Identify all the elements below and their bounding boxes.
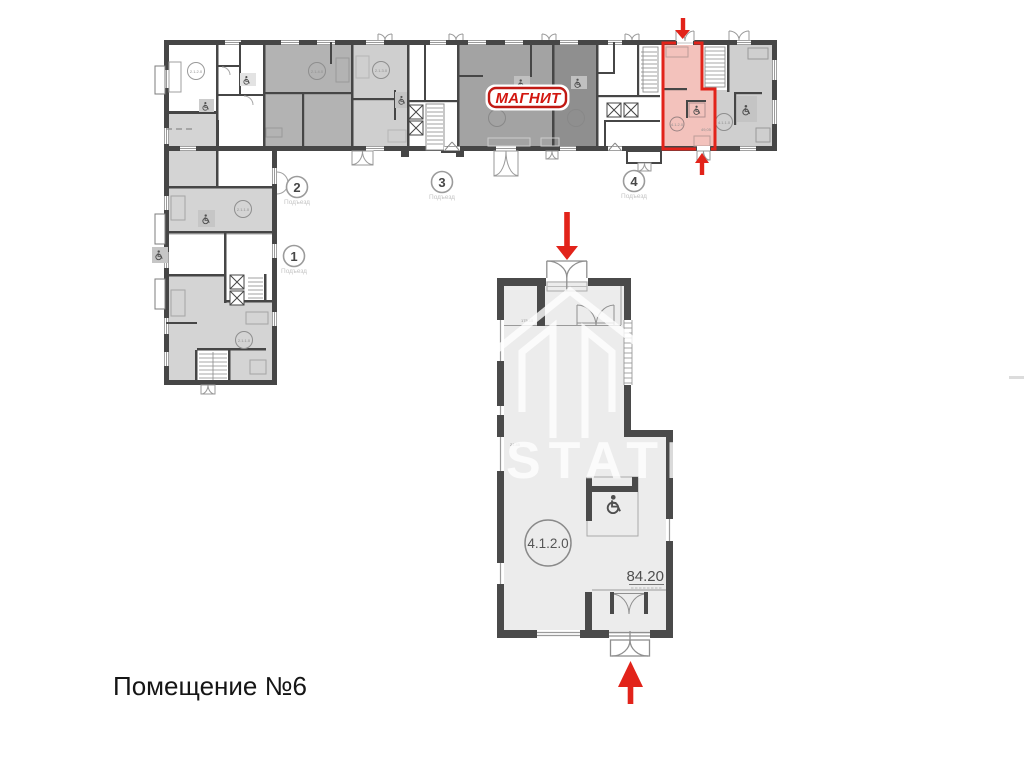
svg-text:49,05: 49,05: [701, 127, 712, 132]
svg-text:2.1.1.0: 2.1.1.0: [238, 338, 251, 343]
svg-text:Подъезд: Подъезд: [621, 193, 647, 200]
svg-text:2.1.3.0: 2.1.3.0: [375, 68, 388, 73]
svg-text:84.20: 84.20: [626, 568, 664, 585]
svg-text:МАГНИТ: МАГНИТ: [495, 90, 562, 107]
svg-text:Помещение №6: Помещение №6: [113, 671, 307, 701]
svg-text:STATE: STATE: [506, 432, 709, 490]
svg-text:4.1.2.0: 4.1.2.0: [671, 122, 684, 127]
svg-text:Подъезд: Подъезд: [281, 268, 307, 275]
svg-text:1: 1: [290, 249, 297, 264]
svg-text:2: 2: [293, 180, 300, 195]
svg-text:2.1.4.0: 2.1.4.0: [311, 69, 324, 74]
svg-text:2.1.2.0: 2.1.2.0: [190, 69, 203, 74]
svg-text:3: 3: [438, 175, 445, 190]
svg-text:4: 4: [630, 174, 638, 189]
svg-text:Подъезд: Подъезд: [284, 199, 310, 206]
svg-text:4.1.2.0: 4.1.2.0: [527, 536, 568, 551]
svg-text:4.1.1.0: 4.1.1.0: [718, 120, 731, 125]
svg-text:2.1.1.0: 2.1.1.0: [237, 207, 250, 212]
svg-text:Подъезд: Подъезд: [429, 194, 455, 201]
